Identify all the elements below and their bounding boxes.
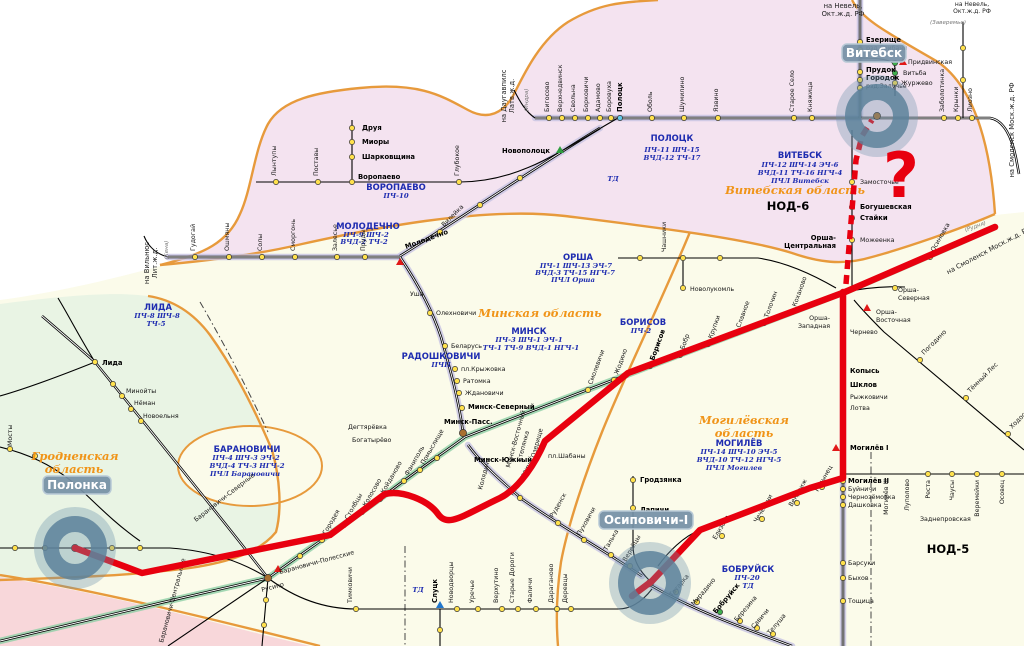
station-dot <box>349 139 354 144</box>
hub-label: ПЧ-11 ШЧ-15 <box>643 146 699 154</box>
station-dot <box>517 495 522 500</box>
hub-label: БАРАНОВИЧИ <box>214 444 281 454</box>
station-label: Нёман <box>134 399 155 407</box>
station-badge[interactable]: Полонка <box>43 476 111 494</box>
station-label: Верхнедвинск <box>557 64 564 112</box>
station-dot <box>608 552 613 557</box>
station-dot <box>12 545 17 550</box>
station-dot <box>568 606 573 611</box>
edge-label: на Невель, <box>955 1 989 8</box>
station-label: Чернево <box>850 329 878 336</box>
station-dot <box>292 254 297 259</box>
station-label: Дараганово <box>548 564 555 603</box>
station-label: Слуцк <box>431 579 439 603</box>
station-label: пл.Шабаны <box>548 452 586 460</box>
station-label: Витьба <box>903 69 927 77</box>
edge-label: Лит.ж.д. <box>151 248 159 279</box>
station-label: Сморгонь <box>290 219 297 251</box>
station-label: Орша- <box>809 315 830 322</box>
station-label: Северная <box>898 295 930 302</box>
station-label: Реста <box>925 480 932 499</box>
station-dot <box>259 254 264 259</box>
station-label: Лида <box>102 359 123 367</box>
hub-label: ТД <box>607 175 619 183</box>
station-dot <box>452 366 457 371</box>
station-label: Минойты <box>126 387 156 395</box>
station-badge-label: Полонка <box>47 478 107 492</box>
station-dot <box>581 537 586 542</box>
edge-label: (Заверемье) <box>930 20 966 26</box>
station-dot <box>681 115 686 120</box>
hub-label: ТЧ-5 <box>146 320 165 328</box>
station-label: Восточная <box>876 317 911 324</box>
station-dot <box>963 395 968 400</box>
station-dot <box>533 606 538 611</box>
station-label: Луполово <box>904 479 911 511</box>
station-dot <box>261 622 266 627</box>
hub-label: ПЧ-3 ШЧ-1 ЭЧ-1 <box>494 336 562 344</box>
station-label: Западная <box>798 323 830 330</box>
edge-label: на Смоленск Моск.ж.д. РФ <box>1008 82 1016 177</box>
station-dot <box>925 471 930 476</box>
station-dot <box>334 254 339 259</box>
station-label: Язвино <box>713 88 720 112</box>
station-dot <box>119 393 124 398</box>
edge-label: Окт.ж.д. РФ <box>953 8 991 15</box>
station-dot <box>273 179 278 184</box>
station-dot <box>456 390 461 395</box>
station-dot <box>454 378 459 383</box>
hub-label: БОБРУЙСК <box>722 563 775 574</box>
station-label: Осовец <box>999 480 1006 504</box>
station-label: Мосты <box>7 425 14 446</box>
station-dot <box>515 606 520 611</box>
station-label: Копысь <box>850 367 879 375</box>
station-dot <box>572 115 577 120</box>
station-label: Новополоцк <box>502 147 550 155</box>
station-dot <box>454 606 459 611</box>
station-dot <box>597 115 602 120</box>
station-dot <box>192 254 197 259</box>
hub-label: ПОЛОЦК <box>651 133 694 143</box>
target-marker[interactable] <box>34 507 116 589</box>
station-label: Чашники <box>661 222 668 252</box>
station-label: Буйничи <box>848 485 876 493</box>
station-dot <box>264 574 271 581</box>
station-dot <box>401 478 406 483</box>
station-dot <box>427 310 432 315</box>
railway-map-screenshot: на Невель,Окт.ж.д. РФна Невель,Окт.ж.д. … <box>0 0 1024 646</box>
station-dot <box>297 553 302 558</box>
station-label: Уша <box>410 291 424 298</box>
station-dot <box>617 115 622 120</box>
station-dot <box>349 125 354 130</box>
station-dot <box>475 606 480 611</box>
station-label: Глубокое <box>453 145 461 176</box>
station-dot <box>437 627 442 632</box>
station-dot <box>637 255 642 260</box>
station-dot <box>263 597 268 602</box>
station-label: Лотва <box>850 405 870 412</box>
station-label: Оболь <box>646 91 654 112</box>
station-dot <box>517 175 522 180</box>
station-label: Минск-Северный <box>468 403 535 411</box>
station-badge-label: Осиповичи-I <box>604 513 688 527</box>
station-label: Тощица <box>847 598 874 605</box>
station-label: Заднепровская <box>920 516 971 523</box>
station-dot <box>417 467 422 472</box>
hub-label: ПЧЛ Витебск <box>770 177 829 185</box>
station-dot <box>840 502 845 507</box>
hub-label: ПЧП <box>430 361 451 369</box>
station-label: Княжица <box>807 82 814 112</box>
station-label: Быхов <box>848 575 869 582</box>
station-dot <box>1005 431 1010 436</box>
station-label: Олехновичи <box>436 310 476 317</box>
station-dot <box>315 179 320 184</box>
station-dot <box>554 606 559 611</box>
station-dot <box>608 115 613 120</box>
region-label: область <box>45 462 104 476</box>
railway-map: на Невель,Окт.ж.д. РФна Невель,Окт.ж.д. … <box>0 0 1024 646</box>
station-dot <box>630 477 635 482</box>
station-dot <box>353 606 358 611</box>
station-dot <box>680 285 685 290</box>
station-label: Барсуки <box>848 560 875 567</box>
station-dot <box>559 115 564 120</box>
station-dot <box>585 387 590 392</box>
station-label: Орша- <box>898 287 919 294</box>
station-label: Солы <box>257 234 264 251</box>
station-label: Богатырёво <box>352 436 392 444</box>
hub-label: МИНСК <box>511 326 546 336</box>
station-badge[interactable]: Осиповичи-I <box>599 511 693 529</box>
station-label: Орша- <box>811 234 836 242</box>
hub-label: ТД <box>412 586 424 594</box>
station-dot <box>840 494 845 499</box>
region-label: Могилёвская <box>698 413 789 427</box>
station-label: Уречье <box>469 580 476 603</box>
station-label: Пруды <box>360 229 367 251</box>
hub-label: ВЧД-10 ТЧ-12 НГЧ-5 <box>696 456 782 464</box>
region-label: Витебская область <box>724 183 865 197</box>
station-dot <box>92 359 97 364</box>
hub-label: БОРИСОВ <box>620 317 666 327</box>
station-dot <box>892 285 897 290</box>
hub-label: ПЧЛ Орша <box>550 276 595 284</box>
hub-label: ТЧ-1 ТЧ-9 ВЧД-1 НГЧ-1 <box>483 344 579 352</box>
station-label: Фаличи <box>527 578 534 603</box>
hub-label: ВИТЕБСК <box>778 150 822 160</box>
station-label: Старое Село <box>789 70 796 112</box>
station-label: Лынтупы <box>271 146 278 176</box>
edge-label: (Кена) <box>164 241 170 260</box>
edge-label: на Даугавпилс <box>500 69 508 122</box>
station-label: Дегтярёвка <box>348 423 387 431</box>
station-label: Старые Дороги <box>509 552 516 603</box>
station-dot <box>456 179 461 184</box>
station-label: Залесье <box>332 224 339 251</box>
station-label: Ратомка <box>463 378 491 385</box>
station-dot <box>226 254 231 259</box>
station-badge-label: Витебск <box>846 46 902 60</box>
hub-label: ПЧ-2 <box>630 327 652 335</box>
station-label: Шумилино <box>679 76 686 112</box>
station-label: Гродзянка <box>640 476 682 484</box>
station-dot <box>840 598 845 603</box>
hub-label: ПЧЛ Могилев <box>705 464 763 472</box>
station-dot <box>546 115 551 120</box>
station-label: Рыжковичи <box>850 394 888 401</box>
station-dot <box>630 505 635 510</box>
station-label: Дашковка <box>848 502 882 509</box>
hub-label: ВЧД-4 ТЧ-3 НГЧ-2 <box>209 462 285 470</box>
station-label: Новоельня <box>143 413 179 420</box>
station-dot <box>960 77 965 82</box>
hub-label: ПЧ-20 <box>733 574 759 582</box>
hub-label: ТД <box>742 582 754 590</box>
station-dot <box>110 381 115 386</box>
hub-label: ВЧД-11 ТЧ-16 НГЧ-4 <box>757 169 843 177</box>
station-dot <box>459 429 466 436</box>
station-dot <box>969 115 974 120</box>
station-dot <box>999 471 1004 476</box>
station-dot <box>680 255 685 260</box>
station-label: Веремейки <box>973 480 981 517</box>
edge-label: на Невель, <box>824 2 863 10</box>
station-dot <box>128 406 133 411</box>
station-dot <box>459 405 464 410</box>
station-dot <box>717 255 722 260</box>
station-label: Поставы <box>313 148 320 176</box>
edge-label: Латв.ж.д. <box>508 79 516 114</box>
station-label: Чаусы <box>949 480 956 500</box>
hub-label: МОГИЛЁВ <box>716 438 763 448</box>
station-label: Центральная <box>784 242 836 250</box>
station-label: Шарковщина <box>362 153 415 161</box>
station-dot <box>349 179 354 184</box>
station-label: Борковичи <box>583 77 590 112</box>
edge-label: Окт.ж.д. РФ <box>822 10 865 18</box>
hub-label: ВОРОПАЕВО <box>366 182 425 192</box>
question-mark: ? <box>883 139 919 212</box>
target-marker[interactable] <box>609 542 691 624</box>
station-label: Ждановичи <box>465 390 504 397</box>
region-label: Гродненская <box>30 449 118 463</box>
station-dot <box>949 471 954 476</box>
station-dot <box>434 455 439 460</box>
station-dot <box>499 606 504 611</box>
station-label: пл.Крыжовка <box>461 366 506 373</box>
edge-label: (Индра) <box>524 88 530 111</box>
station-dot <box>809 115 814 120</box>
hub-label: ПЧ-4 ШЧ-3 ЭЧ-2 <box>211 454 280 462</box>
station-label: Друя <box>362 124 382 132</box>
station-label: Полоцк <box>616 82 624 112</box>
station-dot <box>555 520 560 525</box>
station-dot <box>585 115 590 120</box>
hub-label: ПЧ-12 ШЧ-14 ЭЧ-6 <box>761 161 839 169</box>
station-label: Заболотинка <box>938 69 946 112</box>
station-label: Беларусь <box>451 343 482 350</box>
station-dot <box>840 560 845 565</box>
station-dot <box>791 115 796 120</box>
station-label: Можеенка <box>860 237 895 244</box>
station-label: Лиозно <box>967 88 974 112</box>
station-label: Миоры <box>362 138 389 146</box>
station-dot <box>857 69 862 74</box>
station-label: Новодворцы <box>448 562 455 603</box>
hub-label: ПЧ-8 ШЧ-8 <box>133 312 180 320</box>
station-dot <box>917 357 922 362</box>
edge-label: на Вильнюс <box>143 242 151 284</box>
station-label: Деревцы <box>562 573 569 603</box>
station-label: Ошмяны <box>224 223 231 251</box>
hub-label: ПЧ-10 <box>382 192 408 200</box>
station-dot <box>7 446 12 451</box>
hub-label: ПЧ-14 ШЧ-10 ЭЧ-5 <box>700 448 778 456</box>
station-label: Гудогай <box>189 224 197 251</box>
station-dot <box>715 115 720 120</box>
station-label: Боровуха <box>606 81 613 112</box>
nod-label: НОД-6 <box>767 199 809 213</box>
station-dot <box>941 115 946 120</box>
station-label: Воропаево <box>358 173 401 181</box>
hub-label: МОЛОДЕЧНО <box>336 221 400 231</box>
station-label: Журжево <box>901 80 933 87</box>
station-dot <box>955 115 960 120</box>
hub-label: ОРША <box>563 252 594 262</box>
station-dot <box>137 545 142 550</box>
station-badge[interactable]: Витебск <box>842 44 906 62</box>
station-label: Езерище <box>866 36 901 44</box>
station-label: Орша- <box>876 309 897 316</box>
station-label: Бигосово <box>544 81 551 112</box>
station-label: Свольна <box>570 84 577 112</box>
region-label: Минская область <box>477 306 602 320</box>
station-label: Могилёв III <box>882 479 890 515</box>
station-dot <box>349 154 354 159</box>
station-label: Крынки <box>953 87 960 112</box>
station-label: Могилёв I <box>850 444 889 452</box>
station-dot <box>840 486 845 491</box>
station-dot <box>974 471 979 476</box>
nod-label: НОД-5 <box>927 542 969 556</box>
hub-label: РАДОШКОВИЧИ <box>402 351 481 361</box>
station-label: Тимковичи <box>347 567 354 604</box>
station-label: Новолукомль <box>690 286 734 293</box>
station-dot <box>362 254 367 259</box>
station-label: Адамово <box>595 83 602 112</box>
station-label: Минск-Пасс. <box>444 418 493 426</box>
question-mark-layer: ? <box>883 139 919 212</box>
station-label: Верхутино <box>493 567 500 603</box>
station-dot <box>442 343 447 348</box>
station-dot <box>840 575 845 580</box>
station-label: Придвинская <box>908 59 952 66</box>
station-dot <box>649 115 654 120</box>
station-label: Стайки <box>860 214 888 222</box>
hub-label: ЛИДА <box>144 302 172 312</box>
station-dot <box>960 45 965 50</box>
station-dot <box>477 202 482 207</box>
station-label: Шклов <box>850 381 877 389</box>
hub-label: ВЧД-12 ТЧ-17 <box>643 154 701 162</box>
station-label: Прудок <box>866 66 896 74</box>
